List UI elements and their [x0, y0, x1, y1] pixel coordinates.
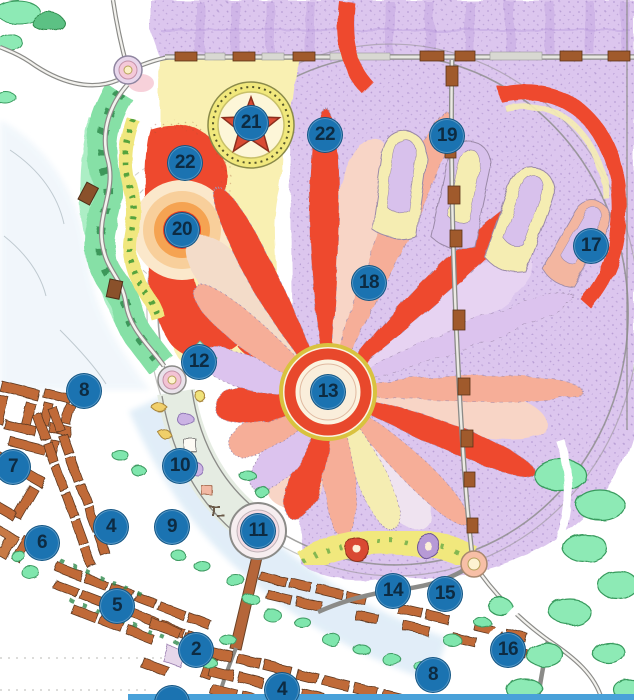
map-marker: 16: [490, 632, 526, 668]
map-marker: 15: [427, 576, 463, 612]
map-marker: 22: [167, 145, 203, 181]
map-marker: 21: [233, 105, 269, 141]
map-marker: 6: [24, 525, 60, 561]
map-marker: 7: [0, 449, 31, 485]
map-marker: 12: [181, 344, 217, 380]
map-marker: 8: [66, 373, 102, 409]
map-marker: 14: [375, 573, 411, 609]
map-marker: 4: [93, 509, 129, 545]
map-marker: 18: [351, 265, 387, 301]
map-marker: 9: [154, 509, 190, 545]
map-marker: 5: [99, 588, 135, 624]
map-marker: 8: [415, 657, 451, 693]
map-marker: 17: [573, 228, 609, 264]
map-marker: 19: [429, 118, 465, 154]
master-plan-map: 2122221917182012138710911465241415168: [0, 0, 634, 700]
map-marker: 13: [310, 374, 346, 410]
map-marker: 11: [240, 513, 276, 549]
map-marker: 4: [264, 672, 300, 700]
map-marker: 20: [164, 212, 200, 248]
map-marker: 2: [178, 632, 214, 668]
map-marker: 10: [162, 448, 198, 484]
map-marker: 22: [307, 117, 343, 153]
map-marker: [154, 685, 190, 700]
marker-layer: 2122221917182012138710911465241415168: [0, 0, 634, 700]
